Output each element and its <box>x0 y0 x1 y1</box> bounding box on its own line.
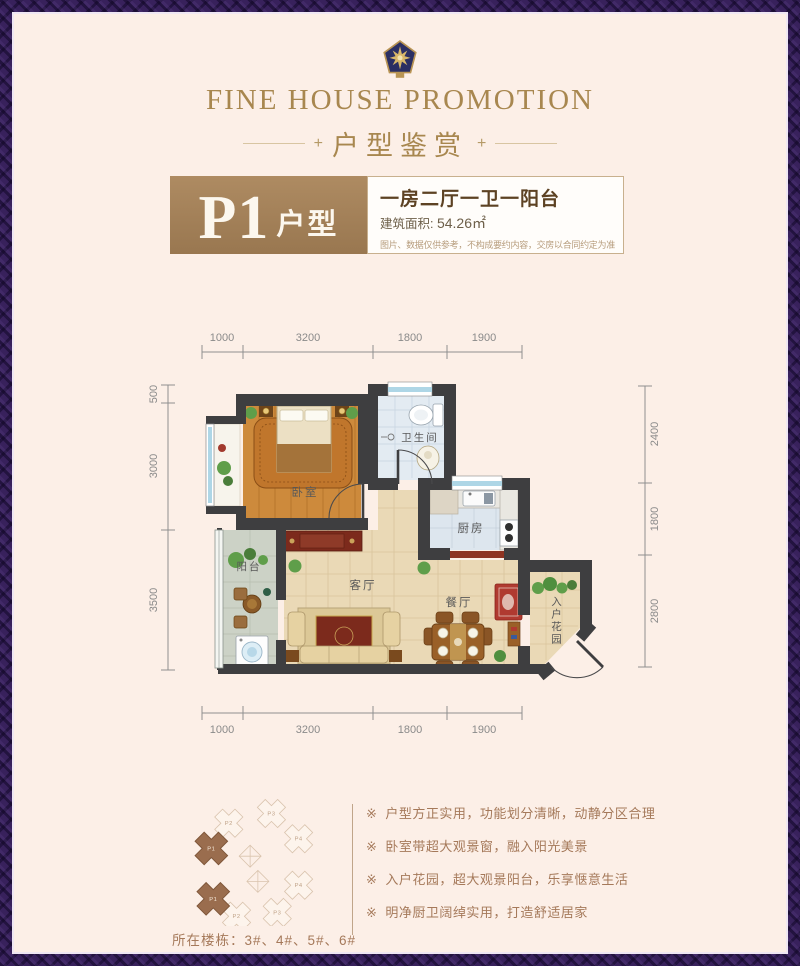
feature-list: ※ 户型方正实用，功能划分清晰，动静分区合理 ※ 卧室带超大观景窗，融入阳光美景… <box>366 806 656 938</box>
label-balcony: 阳台 <box>237 560 262 573</box>
feature-text: 明净厨卫阔绰实用，打造舒适居家 <box>385 905 588 922</box>
unit-label: P4 <box>295 883 303 889</box>
window-bay <box>206 424 214 506</box>
unit-label: P2 <box>233 914 241 920</box>
dim-left-1: 500 <box>148 385 160 403</box>
unit-label: P4 <box>295 837 303 843</box>
unit-suffix: 户型 <box>276 201 338 243</box>
dim-bottom-1: 1000 <box>210 724 234 736</box>
unit-label-highlight: P1 <box>209 897 217 903</box>
crest-star-icon <box>381 40 419 82</box>
divider-line-left <box>243 143 305 144</box>
unit-headline: 一房二厅一卫一阳台 <box>380 184 611 211</box>
plant-icon <box>289 560 302 573</box>
feature-item: ※ 户型方正实用，功能划分清晰，动静分区合理 <box>366 806 656 823</box>
dim-top-1: 1000 <box>210 332 234 344</box>
dim-left-3: 3500 <box>148 588 160 612</box>
label-bathroom: 卫生间 <box>401 431 439 444</box>
feature-text: 入户花园，超大观景阳台，乐享惬意生活 <box>385 872 628 889</box>
window-bathroom <box>388 382 432 396</box>
plant-icon <box>346 407 358 419</box>
building-location-map: P2 P3 P4 P1 P1 P2 P3 P4 <box>180 798 328 926</box>
unit-area: 建筑面积: 54.26㎡ <box>380 213 611 233</box>
label-kitchen: 厨房 <box>458 522 485 535</box>
feature-item: ※ 卧室带超大观景窗，融入阳光美景 <box>366 839 656 856</box>
divider-line-right <box>495 143 557 144</box>
bed <box>254 406 352 488</box>
feature-text: 卧室带超大观景窗，融入阳光美景 <box>385 839 588 856</box>
page-title-cn: 户型鉴赏 <box>332 124 468 163</box>
dim-bottom-2: 3200 <box>296 724 320 736</box>
window-balcony <box>215 530 223 668</box>
unit-code: P1 <box>199 192 270 245</box>
reference-mark-icon: ※ <box>366 806 377 823</box>
sofa-set <box>286 608 402 664</box>
window-kitchen <box>452 476 502 490</box>
page-title-en: FINE HOUSE PROMOTION <box>0 84 800 117</box>
floorplan-drawing: 卧室 卫生间 厨房 客厅 餐厅 阳台 入户花园 1000 3200 1800 1… <box>140 308 685 763</box>
dim-bottom-4: 1900 <box>472 724 496 736</box>
pass-through-counter <box>450 551 504 558</box>
sideboard <box>508 622 520 646</box>
plus-ornament-right: + <box>477 135 486 153</box>
plant-icon <box>418 562 431 575</box>
tv-cabinet <box>282 531 362 551</box>
dim-bottom-3: 1800 <box>398 724 422 736</box>
label-living: 客厅 <box>350 578 377 592</box>
label-bedroom: 卧室 <box>292 485 319 499</box>
label-garden: 入户花园 <box>550 596 562 646</box>
reference-mark-icon: ※ <box>366 872 377 889</box>
dim-right-2: 1800 <box>649 507 661 531</box>
unit-label: P3 <box>273 910 281 916</box>
dim-left-2: 3000 <box>148 454 160 478</box>
unit-label: P3 <box>267 811 275 817</box>
area-value: 54.26㎡ <box>437 215 486 231</box>
toilet <box>409 404 443 426</box>
dim-right-1: 2400 <box>649 422 661 446</box>
page-title-cn-row: + 户型鉴赏 + <box>0 124 800 163</box>
bay-window-sill <box>214 424 240 506</box>
washing-machine <box>236 636 268 666</box>
section-divider <box>352 804 353 935</box>
plus-ornament-left: + <box>314 135 323 153</box>
feature-item: ※ 入户花园，超大观景阳台，乐享惬意生活 <box>366 872 656 889</box>
dim-top-4: 1900 <box>472 332 496 344</box>
plant-icon <box>245 407 257 419</box>
promotion-poster: FINE HOUSE PROMOTION + 户型鉴赏 + P1 户型 一房二厅… <box>0 0 800 966</box>
unit-label: P2 <box>225 821 233 827</box>
unit-info-box: 一房二厅一卫一阳台 建筑面积: 54.26㎡ 图片、数据仅供参考，不构成要约内容… <box>367 176 624 254</box>
reference-mark-icon: ※ <box>366 905 377 922</box>
feature-item: ※ 明净厨卫阔绰实用，打造舒适居家 <box>366 905 656 922</box>
disclaimer-text: 图片、数据仅供参考，不构成要约内容，交房以合同约定为准 <box>380 238 611 251</box>
reference-mark-icon: ※ <box>366 839 377 856</box>
dim-top-3: 1800 <box>398 332 422 344</box>
area-label: 建筑面积: <box>380 217 433 231</box>
unit-type-badge: P1 户型 <box>170 176 367 254</box>
building-caption: 所在楼栋：3#、4#、5#、6# <box>172 929 356 949</box>
dining-rug <box>495 584 522 620</box>
label-dining: 餐厅 <box>446 595 473 609</box>
plant-icon <box>494 650 506 662</box>
feature-text: 户型方正实用，功能划分清晰，动静分区合理 <box>385 806 655 823</box>
dim-top-2: 3200 <box>296 332 320 344</box>
dim-right-3: 2800 <box>649 599 661 623</box>
unit-label-highlight: P1 <box>207 846 215 852</box>
